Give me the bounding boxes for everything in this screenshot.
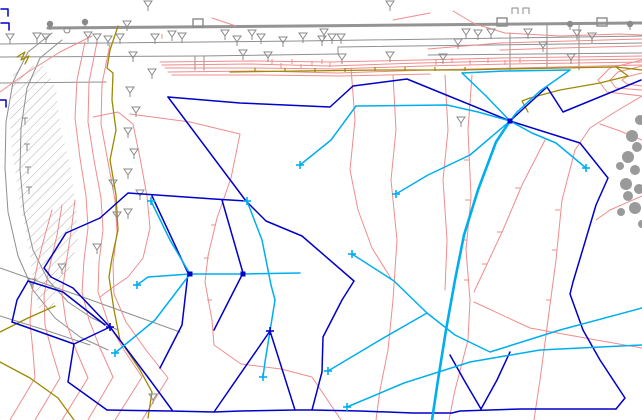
spot-elevation-icon [116,34,124,40]
tree-icon [82,19,88,25]
contour-line [101,44,168,420]
utility-blue-line [100,193,354,410]
contour-line [534,96,642,420]
spot-elevation-icon [457,117,465,123]
vegetation-blob-layer [616,115,642,228]
spot-elevation-icon [124,209,132,215]
utility-cyan-line [510,121,586,168]
utility-cyan-line [356,105,510,121]
utility-blue-line [12,322,110,344]
utility-cyan-line [137,273,300,285]
contour-line [376,75,397,420]
contour-line [500,46,642,50]
spot-elevation-icon [104,36,112,42]
spot-elevation-icon [168,31,176,37]
utility-blue-line [107,409,616,413]
contour-line [160,56,642,62]
contour-line [212,18,236,26]
road-line [338,43,642,54]
vegetation-blob [623,191,633,201]
vegetation-blob [635,115,642,125]
utility-cyan-line [347,345,642,407]
spot-elevation-icon [386,52,394,58]
culvert-bracket-icon [523,8,529,14]
road-line [0,54,338,57]
utility-blue-line [1,23,9,30]
utility-blue-line [12,281,28,322]
spot-elevation-icon [42,34,50,40]
utility-cyan-line [396,121,510,194]
contour-line [88,42,142,420]
utility-cyan-line [247,201,275,377]
spot-elevation-icon [144,1,152,7]
vegetation-blob [617,208,625,216]
spot-elevation-icon [320,29,328,35]
utility-cyan-line [427,308,642,352]
utility-cyan-line [300,106,356,165]
cad-canvas[interactable] [0,0,642,420]
spot-elevation-icon [338,54,346,60]
vegetation-blob [629,202,641,214]
spot-elevation-icon [233,36,241,42]
spot-elevation-icon [93,244,101,250]
contour-line [350,68,392,280]
contour-line [443,75,448,290]
utility-blue-layer [0,9,641,413]
spot-elevation-icon [588,33,596,39]
spot-elevation-icon [299,33,307,39]
utility-node-icon [508,119,513,124]
vegetation-blob [622,151,634,163]
utility-cyan-line [328,313,427,371]
contour-line [75,42,113,420]
spot-elevation-icon [178,33,186,39]
road-line [428,53,642,55]
contour-tick-layer [162,34,560,350]
boundary-olive-layer [0,26,642,420]
utility-blue-line [168,97,246,201]
spot-elevation-icon [257,34,265,40]
vegetation-blob [620,178,632,190]
spot-elevation-icon [151,34,159,40]
contour-line [474,302,642,348]
spot-elevation-icon [33,33,41,39]
utility-blue-line [0,100,6,107]
spot-elevation-icon [248,30,256,36]
tree-icon [627,21,633,27]
spot-elevation-icon [454,39,462,45]
vegetation-blob [626,130,638,142]
spot-elevation-icon [93,34,101,40]
spot-elevation-icon [124,169,132,175]
vegetation-blob [616,162,624,170]
spot-elevation-icon [386,1,394,7]
utility-node-icon [241,272,246,277]
spot-elevation-icon [129,52,137,58]
contour-line [393,13,430,20]
spot-elevation-icon [6,34,14,40]
tree-icon [47,21,53,27]
tree-icon [567,21,573,27]
contour-layer [0,11,642,420]
road-line-thick [48,23,642,28]
boundary-line [0,362,74,420]
spot-elevation-icon [221,30,229,36]
spot-elevation-icon [124,128,132,134]
utility-blue-line [481,352,510,409]
utility-cyan-line [151,201,190,274]
vegetation-blob [634,184,642,194]
utility-cyan-line [352,254,427,313]
utility-cyan-main-line [432,121,510,420]
vegetation-blob [630,165,640,175]
utility-node-layer [106,119,590,412]
contour-line [474,140,545,292]
spot-elevation-icon [130,149,138,155]
spot-elevation-icon [328,34,336,40]
boundary-line [522,67,628,112]
culvert-bracket-icon [512,8,518,14]
spot-elevation-icon [539,42,547,48]
spot-elevation-icon [279,37,287,43]
vegetation-blob [638,220,642,228]
utility-node-icon [188,272,193,277]
boundary-line [107,26,152,418]
utility-blue-line [152,196,188,368]
spot-elevation-icon [474,30,482,36]
contour-line [130,114,341,420]
spot-elevation-icon [462,29,470,35]
spot-elevation-icon [126,87,134,93]
contour-line [172,74,430,76]
site-plan-drawing [0,0,642,420]
spot-elevation-icon [132,107,140,113]
utility-blue-line [214,200,243,330]
utility-cyan-line [115,274,190,353]
utility-blue-line [1,9,8,16]
road-layer [0,23,642,350]
utility-cyan-line [462,70,570,73]
road-thick-layer [48,23,642,28]
utility-blue-line [110,327,172,410]
utility-blue-line [214,331,295,412]
spot-elevation-icon [148,69,156,75]
vegetation-blob [632,142,642,152]
spot-elevation-icon [487,29,495,35]
spot-elevation-icon [337,34,345,40]
